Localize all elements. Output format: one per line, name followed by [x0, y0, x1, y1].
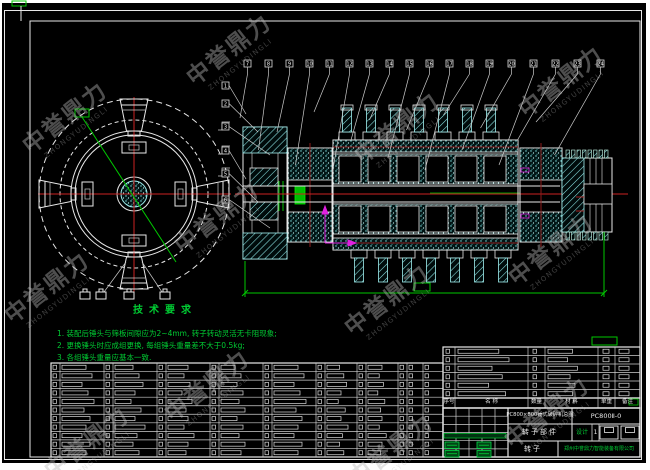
drawing-number: PC800Ⅱ-0 [572, 408, 640, 424]
svg-text:2: 2 [224, 102, 227, 108]
title-type: 转子 [508, 441, 558, 457]
tech-requirements-heading: 技术要求 [133, 306, 197, 316]
svg-text:1: 1 [224, 84, 227, 90]
svg-text:3: 3 [224, 125, 227, 131]
svg-text:11: 11 [326, 62, 332, 68]
bom-header-note: 备注 [615, 398, 640, 408]
key-highlight [295, 186, 305, 204]
drawing-page: 789101112131415161718192021222324123456 … [0, 0, 650, 470]
bom-header-name: 名 称 [455, 398, 528, 408]
svg-text:21: 21 [530, 62, 536, 68]
svg-text:19: 19 [486, 62, 492, 68]
sheet-number: 1 [592, 424, 599, 441]
svg-text:7: 7 [246, 62, 249, 68]
title-sub: 转子部件 [508, 424, 572, 441]
bom-header-material: 材 料 [545, 398, 598, 408]
svg-text:6: 6 [224, 198, 227, 204]
svg-text:12: 12 [346, 62, 352, 68]
svg-text:5: 5 [224, 172, 227, 178]
svg-text:23: 23 [574, 62, 580, 68]
tech-requirement-1: 1. 装配后锤头与筛板间隙应为2~4mm, 转子转动灵活无卡阻现象; [57, 330, 277, 338]
svg-text:17: 17 [446, 62, 452, 68]
svg-text:24: 24 [597, 62, 603, 68]
stage-label: 设计 [572, 424, 592, 441]
svg-text:10: 10 [306, 62, 312, 68]
svg-text:8: 8 [267, 62, 270, 68]
svg-text:16: 16 [426, 62, 432, 68]
bom-header-no: 序号 [443, 398, 455, 408]
tech-requirement-2: 2. 更换锤头时应成组更换, 每组锤头重量差不大于0.5kg; [57, 342, 245, 350]
tech-requirement-3: 3. 各组锤头重量应基本一致. [57, 354, 151, 362]
svg-text:15: 15 [406, 62, 412, 68]
svg-text:4: 4 [224, 149, 227, 155]
svg-text:13: 13 [366, 62, 372, 68]
svg-text:22: 22 [552, 62, 558, 68]
title-main: PC800×800锤式破碎机总图 [508, 408, 572, 424]
company-name: 郑州中誉鼎力智能装备有限公司 [558, 441, 640, 457]
svg-text:9: 9 [288, 62, 291, 68]
svg-text:18: 18 [466, 62, 472, 68]
svg-text:14: 14 [386, 62, 392, 68]
bom-header-unit-weight: 单重 [598, 398, 615, 408]
svg-text:20: 20 [508, 62, 514, 68]
bom-header-qty: 数量 [528, 398, 545, 408]
